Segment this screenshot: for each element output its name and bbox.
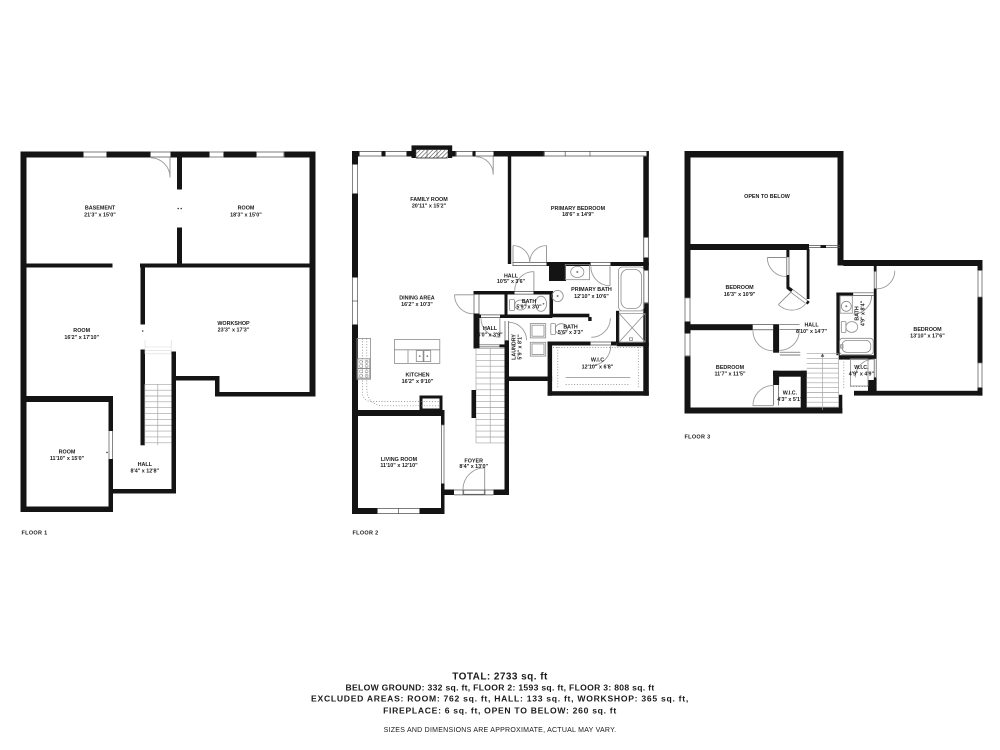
- svg-text:LAUNDRY: LAUNDRY: [512, 334, 518, 360]
- svg-text:5'6" x 3'3": 5'6" x 3'3": [558, 330, 584, 336]
- svg-text:FAMILY ROOM: FAMILY ROOM: [410, 197, 448, 203]
- svg-text:W.I.C.: W.I.C.: [783, 391, 798, 397]
- svg-text:21'3" x 15'0": 21'3" x 15'0": [84, 212, 116, 218]
- svg-text:FLOOR 2: FLOOR 2: [353, 531, 379, 537]
- svg-text:11'10" x 15'0": 11'10" x 15'0": [50, 456, 85, 462]
- svg-text:BASEMENT: BASEMENT: [85, 206, 116, 212]
- svg-text:WORKSHOP: WORKSHOP: [217, 321, 250, 327]
- svg-text:HALL: HALL: [138, 462, 153, 468]
- svg-text:5'9" x 3'0": 5'9" x 3'0": [516, 305, 542, 311]
- svg-text:BEDROOM: BEDROOM: [716, 365, 745, 371]
- svg-text:KITCHEN: KITCHEN: [406, 373, 430, 379]
- svg-text:PRIMARY BATH: PRIMARY BATH: [571, 287, 612, 293]
- svg-text:4'0" x 3'9": 4'0" x 3'9": [477, 333, 503, 339]
- svg-text:16'2" x 10'3": 16'2" x 10'3": [401, 302, 433, 308]
- svg-text:4'9" x 4'9": 4'9" x 4'9": [849, 372, 875, 378]
- svg-text:OPEN TO BELOW: OPEN TO BELOW: [744, 194, 791, 200]
- svg-text:11'7" x 11'5": 11'7" x 11'5": [714, 372, 746, 378]
- svg-text:FLOOR 1: FLOOR 1: [22, 531, 48, 537]
- svg-text:11'10" x 12'10": 11'10" x 12'10": [380, 463, 418, 469]
- svg-text:4'9" x 8'4": 4'9" x 8'4": [861, 300, 867, 326]
- svg-text:PRIMARY BEDROOM: PRIMARY BEDROOM: [551, 206, 606, 212]
- svg-text:10'5" x 3'6": 10'5" x 3'6": [497, 279, 526, 285]
- svg-text:ROOM: ROOM: [73, 328, 90, 334]
- svg-text:HALL: HALL: [483, 326, 498, 332]
- svg-text:ROOM: ROOM: [238, 206, 255, 212]
- svg-text:5'9" x 8'1": 5'9" x 8'1": [518, 334, 524, 360]
- svg-text:18'6" x 14'9": 18'6" x 14'9": [562, 212, 594, 218]
- svg-text:BELOW GROUND: 332 sq. ft, FLOO: BELOW GROUND: 332 sq. ft, FLOOR 2: 1593 …: [346, 682, 655, 692]
- svg-text:EXCLUDED AREAS: ROOM: 762 sq.: EXCLUDED AREAS: ROOM: 762 sq. ft, HALL: …: [311, 693, 689, 703]
- svg-text:FLOOR 3: FLOOR 3: [685, 435, 711, 441]
- svg-text:W.I.C: W.I.C: [591, 357, 604, 363]
- svg-text:20'11" x 15'2": 20'11" x 15'2": [412, 203, 447, 209]
- svg-text:12'10" x 10'6": 12'10" x 10'6": [574, 294, 609, 300]
- svg-text:TOTAL: 2733 sq. ft: TOTAL: 2733 sq. ft: [452, 672, 548, 683]
- svg-text:W.I.C.: W.I.C.: [854, 365, 869, 371]
- svg-text:HALL: HALL: [804, 323, 819, 329]
- svg-text:BATH: BATH: [855, 306, 861, 320]
- svg-text:16'2" x 17'10": 16'2" x 17'10": [64, 335, 99, 341]
- svg-text:DINING AREA: DINING AREA: [399, 296, 435, 302]
- svg-text:8'10" x 14'7": 8'10" x 14'7": [796, 329, 828, 335]
- svg-text:8'4" x 12'8": 8'4" x 12'8": [130, 469, 159, 475]
- svg-text:16'3" x 10'9": 16'3" x 10'9": [724, 292, 756, 298]
- svg-text:23'3" x 17'3": 23'3" x 17'3": [218, 328, 250, 334]
- svg-text:BEDROOM: BEDROOM: [913, 327, 942, 333]
- svg-text:12'10" x 6'8": 12'10" x 6'8": [582, 364, 614, 370]
- svg-text:FIREPLACE: 6 sq. ft, OPEN TO B: FIREPLACE: 6 sq. ft, OPEN TO BELOW: 260 …: [383, 705, 617, 715]
- svg-text:BEDROOM: BEDROOM: [726, 285, 755, 291]
- svg-text:13'10" x 17'6": 13'10" x 17'6": [910, 333, 945, 339]
- svg-text:16'2" x 9'10": 16'2" x 9'10": [402, 379, 434, 385]
- svg-text:SIZES AND DIMENSIONS ARE APPRO: SIZES AND DIMENSIONS ARE APPROXIMATE, AC…: [384, 727, 617, 734]
- svg-text:4'3" x 5'1": 4'3" x 5'1": [777, 397, 803, 403]
- svg-text:ROOM: ROOM: [59, 449, 76, 455]
- svg-text:18'3" x 15'0": 18'3" x 15'0": [230, 212, 262, 218]
- svg-text:8'4" x 13'0": 8'4" x 13'0": [459, 464, 488, 470]
